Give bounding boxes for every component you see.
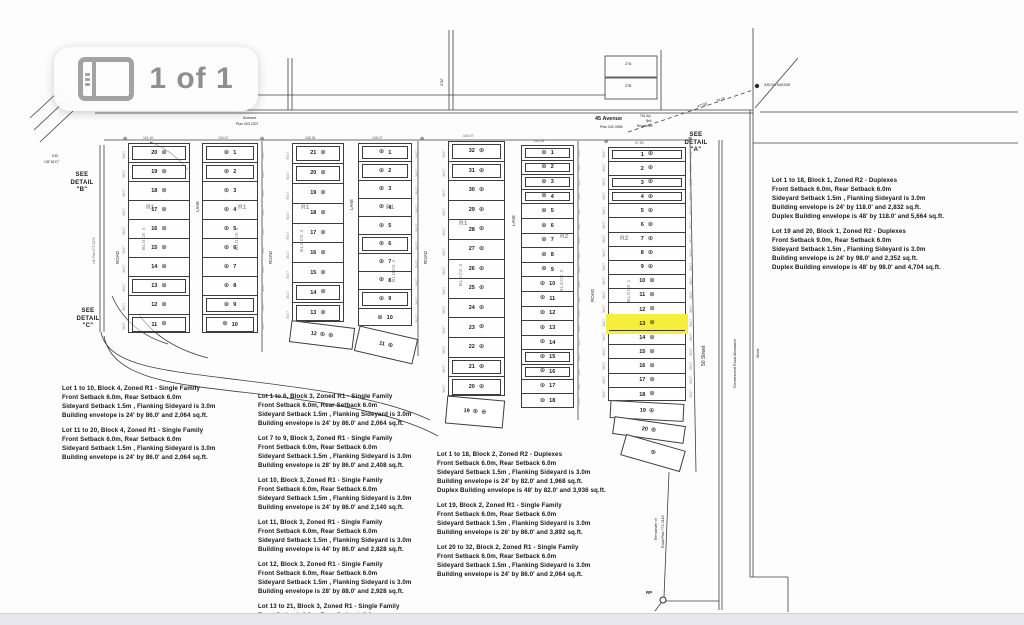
dimension-tick: 36.07 (415, 297, 419, 305)
plan-number-label: Plan 042 0056 (600, 126, 623, 130)
survey-marker-icon: ⊕ (224, 264, 229, 271)
dimension-tick: 36.07 (261, 189, 265, 197)
lot-row: 22⊕ (449, 338, 504, 358)
zoning-note-line: Sideyard Setback 1.5m , Flanking Sideyar… (258, 494, 443, 503)
dimension-tick: 36.07 (689, 164, 693, 172)
lot-number: 11 (639, 292, 645, 298)
zoning-note: Lot 11 to 20, Block 4, Zoned R1 - Single… (62, 426, 257, 462)
survey-marker-icon: ⊕ (648, 264, 653, 271)
bearing-label: 75.19 (716, 97, 725, 103)
zoning-note-line: Building envelope is 24' by 82.0' and 1,… (437, 477, 627, 486)
lot-row: 20⊕ (129, 144, 189, 163)
lot-row: ⊕2 (359, 162, 411, 180)
dimension-tick: 36.07 (602, 263, 606, 271)
survey-marker-icon: ⊕ (320, 230, 325, 237)
survey-marker-icon: ⊕ (649, 335, 654, 342)
survey-marker-icon: ⊕ (649, 377, 654, 384)
dimension-tick: 36.07 (577, 324, 581, 332)
lot-row: ⊕4 (203, 201, 257, 220)
lot-number: 9 (233, 302, 236, 308)
zoning-note-line: Sideyard Setback 1.5m , Flanking Sideyar… (258, 410, 443, 419)
zoning-note-line: Sideyard Setback 1.5m , Flanking Sideyar… (62, 444, 257, 453)
photo-count-label: 1 of 1 (149, 62, 233, 96)
rp-marker-icon (660, 597, 666, 603)
lot-row: 12⊕ (609, 303, 685, 317)
lot-row: 13⊕ (129, 277, 189, 296)
dimension-tick: 36.07 (602, 390, 606, 398)
dimension-tick: 36.07 (286, 172, 290, 180)
lot-number: 11 (378, 340, 385, 347)
dimension-tick: 36.07 (415, 187, 419, 195)
dimension-tick: 36.07 (689, 348, 693, 356)
lot-row: ⊕9 (522, 263, 573, 278)
lot-number: 17 (310, 230, 316, 236)
lot-row: ⊕4 (359, 199, 411, 217)
survey-marker-icon: ⊕ (479, 324, 484, 331)
survey-marker-icon: ⊕ (224, 169, 229, 176)
zoning-note-line: Lot 11, Block 3, Zoned R1 - Single Famil… (258, 518, 443, 527)
zoning-note-line: Lot 1 to 18, Block 2, Zoned R2 - Duplexe… (437, 450, 627, 459)
corner-dim-label: 135°18'47" (44, 161, 59, 164)
zoning-note-line: Sideyard Setback 1.5m , Flanking Sideyar… (437, 468, 627, 477)
lot-row: 28⊕ (449, 220, 504, 240)
lot-row: ⊕4 (522, 190, 573, 205)
dimension-label: 106.07 (372, 137, 382, 140)
lot-number: 12 (151, 302, 157, 308)
see-detail-line: "C" (68, 323, 108, 331)
dimension-tick: 36.07 (415, 260, 419, 268)
dimension-tick: 36.07 (286, 232, 290, 240)
dimension-label: 97.53 (635, 142, 644, 145)
lot-row: 4⊕ (609, 190, 685, 204)
survey-marker-icon: ⊕ (224, 188, 229, 195)
survey-marker-icon: ⊕ (648, 194, 653, 201)
survey-marker-icon: ⊕ (648, 151, 653, 158)
street-label: Street (757, 349, 761, 358)
lot-row: ⊕8 (359, 272, 411, 290)
survey-marker-icon: ⊕ (540, 354, 545, 361)
dimension-tick: 36.07 (122, 265, 126, 273)
lot-row: 1⊕ (609, 148, 685, 162)
lot-number: 3 (233, 188, 236, 194)
lot-number: 4 (388, 205, 391, 211)
lot-number: 7 (551, 237, 554, 243)
building-envelope-box (525, 148, 570, 158)
dimension-tick: 36.07 (442, 150, 446, 158)
survey-marker-icon: ⊕ (479, 246, 484, 253)
zoning-note-line: Sideyard Setback 1.5m , Flanking Sideyar… (62, 402, 257, 411)
lot-row: ⊕18 (522, 394, 573, 409)
dimension-tick: 36.07 (577, 149, 581, 157)
lot-number: 16 (151, 226, 157, 232)
zoning-note: Lot 19 and 20, Block 1, Zoned R2 - Duple… (772, 227, 1012, 272)
dimension-tick: 36.07 (602, 164, 606, 172)
zoning-note: Lot 1 to 18, Block 1, Zoned R2 - Duplexe… (772, 176, 1012, 221)
lot-row: ⊕1 (203, 144, 257, 163)
dimension-tick: 36.07 (122, 227, 126, 235)
dimension-tick: 36.07 (577, 222, 581, 230)
zoning-note-line: Lot 7 to 9, Block 3, Zoned R1 - Single F… (258, 434, 443, 443)
lot-number: 8 (233, 283, 236, 289)
lot-row: 15⊕ (609, 345, 685, 359)
see-detail-line: "B" (62, 187, 102, 195)
lot-number: 14 (639, 335, 645, 341)
lot-row: 19⊕ (129, 163, 189, 182)
lot-row: ⊕6 (359, 235, 411, 253)
lot-number: 20 (469, 384, 475, 390)
survey-marker-icon: ⊕ (479, 148, 484, 155)
dimension-tick: 36.07 (689, 249, 693, 257)
survey-marker-icon: ⊕ (648, 250, 653, 257)
zoning-note-line: Building envelope is 44' by 86.0' and 2,… (258, 545, 443, 554)
survey-marker-icon: ⊕ (328, 333, 334, 340)
lot-number: 28 (469, 227, 475, 233)
survey-marker-icon: ⊕ (379, 296, 384, 303)
dimension-tick: 36.07 (602, 291, 606, 299)
survey-marker-icon: ⊕ (320, 250, 325, 257)
zoning-note: Lot 1 to 10, Block 4, Zoned R1 - Single … (62, 384, 257, 420)
zoning-note-line: Lot 19 and 20, Block 1, Zoned R2 - Duple… (772, 227, 1012, 236)
dimension-tick: 36.07 (602, 221, 606, 229)
lot-row: ⊕1 (522, 146, 573, 161)
see-detail-line: SEE (676, 132, 716, 140)
see-detail-line: DETAIL (62, 180, 102, 188)
dimension-tick: 36.07 (122, 189, 126, 197)
dimension-tick: 36.07 (577, 265, 581, 273)
zoning-note-line: Building envelope is 24' by 86.0' and 2,… (258, 419, 443, 428)
zoning-note-line: Front Setback 6.0m, Rear Setback 6.0m (258, 527, 443, 536)
dimension-tick: 36.07 (689, 178, 693, 186)
dimension-tick: 36.07 (442, 169, 446, 177)
survey-marker-icon: ⊕ (540, 339, 545, 346)
survey-marker-icon: ⊕ (648, 236, 653, 243)
zoning-note-line: Lot 13 to 21, Block 3, Zoned R1 - Single… (258, 602, 443, 611)
building-envelope-box (206, 317, 254, 332)
survey-marker-icon: ⊕ (649, 349, 654, 356)
dimension-label: 104.07 (218, 137, 228, 140)
lot-number: 5 (641, 208, 644, 214)
zoning-note-line: Lot 10, Block 3, Zoned R1 - Single Famil… (258, 476, 443, 485)
lot-number: 2 (641, 166, 644, 172)
dimension-tick: 36.07 (577, 280, 581, 288)
lot-number: 1 (388, 150, 391, 156)
lot-number: 29 (469, 207, 475, 213)
lot-number: 15 (151, 245, 157, 251)
zoning-note-line: Front Setback 6.0m, Rear Setback 6.0m (62, 393, 257, 402)
dimension-tick: 36.07 (415, 224, 419, 232)
building-envelope-box (132, 279, 186, 293)
dimension-tick: 36.07 (602, 376, 606, 384)
survey-marker-icon: ⊕ (320, 210, 325, 217)
lot-number: 13 (151, 283, 157, 289)
dimension-tick: 36.07 (415, 315, 419, 323)
dimension-tick: 36.07 (577, 236, 581, 244)
lot-row: ⊕14 (522, 336, 573, 351)
survey-marker-icon: ⊕ (649, 363, 654, 370)
lot-number: 15 (310, 270, 316, 276)
remainder-road-plan-label: Remainder of (655, 518, 659, 540)
lot-number: 4 (551, 194, 554, 200)
dimension-tick: 36.07 (442, 228, 446, 236)
lot-number: 14 (151, 264, 157, 270)
building-envelope-box (452, 360, 501, 375)
zoning-note: Lot 13 to 21, Block 3, Zoned R1 - Single… (258, 602, 443, 613)
dimension-tick: 36.07 (286, 311, 290, 319)
lot-row: ⊕2 (522, 161, 573, 176)
survey-marker-icon: ⊕ (649, 278, 654, 285)
road-label: ROAD (591, 289, 596, 302)
survey-marker-icon: ⊕ (379, 149, 384, 156)
zoning-note: Lot 19, Block 2, Zoned R1 - Single Famil… (437, 501, 627, 537)
lot-number: 5 (551, 208, 554, 214)
survey-marker-icon: ⊕ (320, 270, 325, 277)
lot-number: 2 (233, 169, 236, 175)
lot-number: 12 (310, 331, 317, 338)
lot-row: 15⊕ (129, 239, 189, 258)
angled-lot: 12⊕⊕ (289, 320, 355, 350)
lane-label: LANE (196, 201, 200, 212)
survey-marker-icon: ⊕ (649, 408, 655, 415)
ascm-label: ASCM 940305 (764, 83, 790, 87)
dimension-tick: 36.07 (577, 207, 581, 215)
survey-marker-icon: ⊕ (479, 344, 484, 351)
zoning-note-line: Sideyard Setback 1.5m , Flanking Sideyar… (437, 519, 627, 528)
stat-label: STAT (441, 78, 444, 86)
zoning-note-line: Building envelope is 28' by 88.0' and 2,… (258, 587, 443, 596)
lot-number: 11 (151, 322, 157, 328)
zoning-note-line: Lot 12, Block 3, Zoned R1 - Single Famil… (258, 560, 443, 569)
survey-marker-icon: ⊕ (379, 204, 384, 211)
dimension-tick: 36.07 (689, 221, 693, 229)
survey-marker-icon: ⊕ (479, 364, 484, 371)
dimension-tick: 36.07 (689, 235, 693, 243)
survey-marker-icon: ⊕ (648, 222, 653, 229)
zoning-note-line: Building envelope is 24' by 98.0' and 2,… (772, 254, 1012, 263)
notes-block4: Lot 1 to 10, Block 4, Zoned R1 - Single … (62, 384, 257, 468)
lot-number: 15 (549, 354, 555, 360)
lot-row: 14⊕ (293, 283, 343, 303)
dimension-label: 104.07 (463, 135, 473, 138)
survey-marker-icon: ⊕ (379, 241, 384, 248)
dimension-tick: 36.07 (261, 303, 265, 311)
lot-row: ⊕17 (522, 380, 573, 395)
survey-marker-icon: ⊕ (541, 223, 546, 230)
survey-marker-icon: ⊕ (649, 449, 656, 457)
dimension-tick: 36.07 (689, 376, 693, 384)
lot-row: 11⊕ (129, 315, 189, 334)
dimension-tick: 36.07 (122, 246, 126, 254)
survey-marker-icon: ⊕ (541, 208, 546, 215)
zoning-note-line: Building envelope is 24' by 86.0' and 2,… (437, 570, 627, 579)
zoning-note-line: Sideyard Setback 1.5m , Flanking Sideyar… (258, 578, 443, 587)
lot-row: ⊕10 (359, 309, 411, 327)
dimension-tick: 36.07 (577, 251, 581, 259)
easement-label: T61 AA (640, 115, 650, 118)
zoning-note-line: Duplex Building envelope is 48' by 98.0'… (772, 263, 1012, 272)
road-label: ROAD (116, 251, 121, 264)
dimension-tick: 36.07 (442, 267, 446, 275)
zoning-note-line: Building envelope is 24' by 118.0' and 2… (772, 203, 1012, 212)
lot-number: 5 (388, 223, 391, 229)
zoning-note-line: Building envelope is 24' by 86.0' and 2,… (258, 503, 443, 512)
angled-lot: 11⊕ (354, 326, 418, 365)
ascm-marker-icon (755, 84, 759, 88)
survey-marker-icon: ⊕ (540, 310, 545, 317)
lot-row: 24⊕ (449, 299, 504, 319)
survey-marker-icon: ⊕ (224, 226, 229, 233)
dimension-tick: 36.07 (577, 368, 581, 376)
lot-number: 21 (310, 150, 316, 156)
survey-marker-icon: ⊕ (541, 164, 546, 171)
zoning-note-line: Lot 1 to 10, Block 4, Zoned R1 - Single … (62, 384, 257, 393)
survey-marker-icon: ⊕ (540, 383, 545, 390)
survey-marker-icon: ⊕ (649, 306, 654, 313)
lot-number: 30 (469, 187, 475, 193)
road-label: ROAD (424, 251, 429, 264)
viewer-bottom-strip (0, 613, 1024, 625)
lot-number: 14 (549, 340, 555, 346)
lot-number: 18 (549, 398, 555, 404)
lot-number: 26 (469, 266, 475, 272)
lot-row: 12⊕ (129, 296, 189, 315)
lane-label: LANE (350, 199, 354, 210)
dimension-tick: 36.07 (689, 305, 693, 313)
dimension-tick: 36.07 (577, 178, 581, 186)
survey-marker-icon: ⊕ (649, 320, 654, 327)
dimension-tick: 36.07 (602, 277, 606, 285)
lot-row: 11⊕ (609, 289, 685, 303)
survey-marker-icon: ⊕ (541, 150, 546, 157)
see-detail-line: DETAIL (68, 316, 108, 324)
dimension-tick: 36.07 (122, 170, 126, 178)
building-envelope-box (525, 177, 570, 187)
building-envelope-box (452, 144, 501, 159)
zoning-note-line: Lot 11 to 20, Block 4, Zoned R1 - Single… (62, 426, 257, 435)
survey-marker-icon: ⊕ (224, 283, 229, 290)
photo-viewer: AvenuePlan 003 230745 AvenuePlan 042 005… (0, 0, 1024, 624)
survey-marker-icon: ⊕ (479, 266, 484, 273)
dimension-tick: 36.07 (442, 346, 446, 354)
lot-number: 17 (151, 207, 157, 213)
zoning-note: Lot 11, Block 3, Zoned R1 - Single Famil… (258, 518, 443, 554)
dimension-tick: 36.07 (577, 353, 581, 361)
corner-dim-label: 6.52 (52, 155, 58, 158)
lot-row: 6⊕ (609, 218, 685, 232)
easement-label: Registered (637, 125, 652, 128)
lot-number: 20 (641, 426, 648, 433)
lot-row: ⊕10 (522, 277, 573, 292)
dimension-tick: 36.07 (286, 291, 290, 299)
building-envelope-box (525, 352, 570, 362)
dimension-tick: 36.07 (286, 152, 290, 160)
dimension-tick: 36.07 (415, 150, 419, 158)
survey-marker-icon: ⊕ (320, 289, 325, 296)
lot-row: ⊕3 (522, 175, 573, 190)
survey-marker-icon: ⊕ (377, 315, 382, 322)
lot-row: ⊕2 (203, 163, 257, 182)
building-envelope-box (132, 165, 186, 179)
lot-row: 23⊕ (449, 318, 504, 338)
dimension-tick: 36.07 (442, 306, 446, 314)
lot-row: 30⊕ (449, 181, 504, 201)
dimension-label: 121.92 (534, 140, 544, 143)
lot-row: ⊕9 (359, 290, 411, 308)
rp-label: RP (646, 591, 652, 596)
survey-marker-icon: ⊕ (224, 150, 229, 157)
lot-number: 9 (551, 267, 554, 273)
zoning-note-line: Lot 20 to 32, Block 2, Zoned R1 - Single… (437, 543, 627, 552)
lot-row: 21⊕ (293, 144, 343, 164)
survey-marker-icon: ⊕ (541, 193, 546, 200)
dimension-tick: 36.07 (577, 309, 581, 317)
lot-column: 20⊕19⊕18⊕17⊕16⊕15⊕14⊕13⊕12⊕11⊕ (128, 143, 190, 333)
survey-marker-icon: ⊕ (161, 226, 166, 233)
dimension-tick: 36.07 (261, 265, 265, 273)
lot-number: 32 (469, 148, 475, 154)
lot-column: 21⊕20⊕19⊕18⊕17⊕16⊕15⊕14⊕13⊕ (292, 143, 344, 322)
angled-lot: 19⊕⊕ (445, 396, 505, 429)
dimension-tick: 36.07 (442, 208, 446, 216)
lot-row: 31⊕ (449, 162, 504, 182)
survey-marker-icon: ⊕ (479, 168, 484, 175)
survey-marker-icon: ⊕ (379, 168, 384, 175)
survey-marker-icon: ⊕ (379, 223, 384, 230)
lot-row: ⊕5 (359, 217, 411, 235)
lot-row: 16⊕ (293, 243, 343, 263)
dimension-tick: 36.07 (286, 271, 290, 279)
lot-number: 8 (551, 252, 554, 258)
lot-row: 17⊕ (609, 374, 685, 388)
lot-row: 20⊕ (293, 164, 343, 184)
survey-marker-icon: ⊕ (540, 295, 545, 302)
survey-marker-icon: ⊕ (479, 305, 484, 312)
lot-number: 31 (469, 168, 475, 174)
lot-row: 18⊕ (609, 388, 685, 402)
lot-number: 25 (469, 285, 475, 291)
lot-row: 18⊕ (293, 204, 343, 224)
survey-marker-icon: ⊕ (540, 368, 545, 375)
zoning-note-line: Front Setback 6.0m, Rear Setback 6.0m (437, 459, 627, 468)
lot-number: 15 (639, 349, 645, 355)
lot-row: ⊕5 (522, 204, 573, 219)
lot-row: ⊕11 (522, 292, 573, 307)
lot-row: ⊕8 (203, 277, 257, 296)
building-envelope-box (452, 164, 501, 179)
dimension-tick: 36.07 (602, 333, 606, 341)
dimension-tick: 36.07 (577, 163, 581, 171)
zoning-note-line: Front Setback 6.0m, Rear Setback 6.0m (258, 443, 443, 452)
lot-number: 18 (310, 210, 316, 216)
zoning-note-line: Front Setback 6.0m, Rear Setback 6.0m (437, 510, 627, 519)
lot-number: 3 (388, 186, 391, 192)
lot-number: 8 (641, 250, 644, 256)
lot-column: ⊕1⊕2⊕3⊕4⊕5⊕6⊕7⊕8⊕9⊕10 (202, 143, 258, 333)
lot-number: 18 (639, 392, 645, 398)
zoning-note-line: Front Setback 6.0m, Rear Setback 6.0m (772, 185, 1012, 194)
dimension-tick: 36.07 (602, 348, 606, 356)
dimension-tick: 36.07 (689, 333, 693, 341)
dimension-tick: 36.07 (261, 151, 265, 159)
lot-row: 8⊕ (609, 247, 685, 261)
lot-row: ⊕9 (203, 296, 257, 315)
zoning-note: Lot 20 to 32, Block 2, Zoned R1 - Single… (437, 543, 627, 579)
lot-number: 16 (639, 363, 645, 369)
photo-count-badge[interactable]: 1 of 1 (54, 47, 258, 111)
lot-number: 10 (387, 315, 393, 321)
lot-number: 4 (641, 194, 644, 200)
dimension-tick: 36.07 (602, 362, 606, 370)
building-envelope-box (206, 298, 254, 312)
